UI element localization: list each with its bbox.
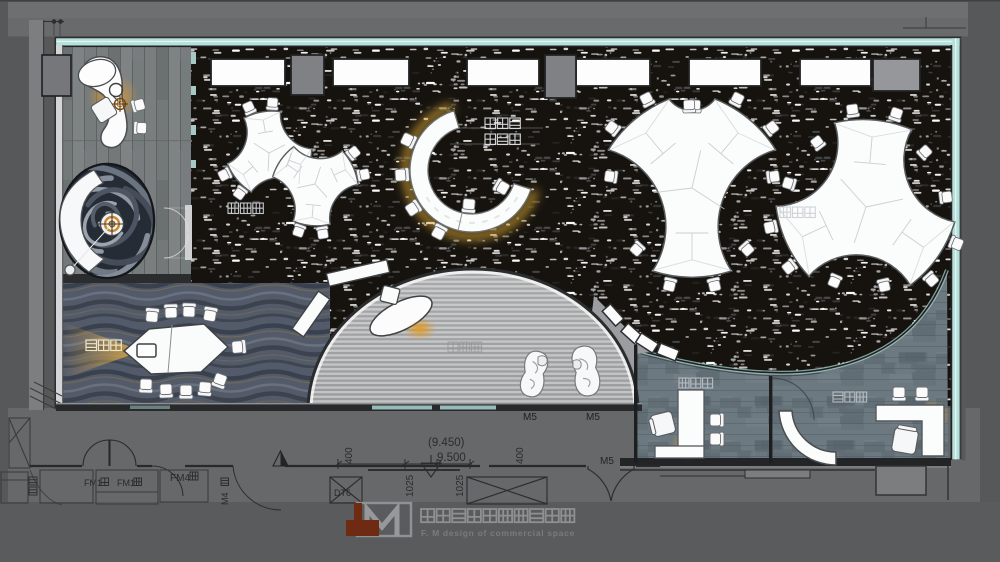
- svg-text:FM4: FM4: [170, 473, 190, 484]
- svg-text:(9.450): (9.450): [428, 437, 465, 449]
- svg-text:FM1: FM1: [117, 478, 135, 488]
- svg-text:F. M design of commercial spac: F. M design of commercial space: [421, 528, 575, 538]
- svg-text:1025: 1025: [455, 474, 466, 497]
- svg-text:400: 400: [344, 447, 355, 464]
- svg-text:9.500: 9.500: [437, 452, 466, 464]
- svg-text:M5: M5: [523, 412, 537, 423]
- svg-text:400: 400: [515, 447, 526, 464]
- svg-text:M5: M5: [586, 412, 600, 423]
- svg-text:1025: 1025: [405, 474, 416, 497]
- svg-text:DT6: DT6: [334, 488, 351, 498]
- svg-text:M5: M5: [600, 456, 614, 467]
- svg-text:M4: M4: [220, 492, 230, 505]
